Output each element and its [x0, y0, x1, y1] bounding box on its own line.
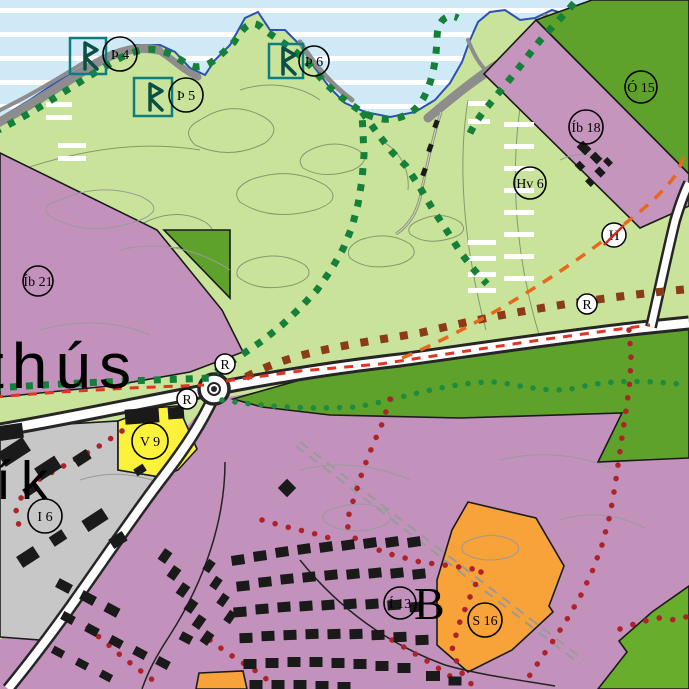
building — [449, 677, 462, 686]
building — [236, 580, 250, 591]
route-r-marker: R — [215, 354, 235, 374]
building — [272, 680, 285, 689]
svg-text:R: R — [582, 298, 592, 313]
svg-text:R: R — [220, 358, 230, 373]
building — [376, 661, 389, 671]
building — [316, 681, 329, 689]
building — [299, 601, 313, 612]
building — [233, 607, 247, 618]
svg-text:Íb 21: Íb 21 — [23, 273, 52, 290]
building — [324, 569, 338, 580]
building — [349, 629, 362, 639]
building — [266, 658, 279, 668]
building — [338, 682, 351, 689]
map-svg: RRRHÞ 4Þ 5Þ 6Ó 15Íb 18Hv 6Íb 21V 9I 6Í 1… — [0, 0, 689, 689]
building — [319, 541, 333, 553]
building — [277, 602, 291, 613]
building — [390, 567, 404, 578]
building — [275, 546, 289, 558]
building — [368, 567, 382, 578]
svg-text:Þ 4: Þ 4 — [111, 48, 129, 63]
svg-text:Þ 5: Þ 5 — [177, 89, 195, 104]
building — [393, 632, 406, 642]
building — [354, 659, 367, 669]
place-name: B — [414, 578, 445, 629]
svg-text:R: R — [182, 393, 192, 408]
building — [261, 631, 274, 641]
building — [398, 663, 411, 673]
building — [244, 659, 257, 669]
building — [302, 571, 316, 582]
route-r-marker: R — [577, 294, 597, 314]
building — [258, 576, 272, 587]
place-name: thús — [0, 330, 139, 402]
building — [332, 658, 345, 668]
zone-orange — [196, 671, 247, 689]
building — [385, 536, 399, 548]
building — [250, 680, 263, 689]
svg-text:Íb 18: Íb 18 — [571, 119, 600, 136]
building — [310, 657, 323, 667]
building — [305, 629, 318, 639]
svg-text:Ó 15: Ó 15 — [627, 79, 655, 96]
building — [341, 539, 355, 551]
building — [239, 633, 252, 643]
building — [346, 568, 360, 579]
building — [255, 604, 269, 615]
building — [407, 536, 421, 548]
svg-text:Þ 6: Þ 6 — [305, 55, 323, 70]
building — [426, 671, 440, 681]
building — [343, 599, 357, 610]
svg-text:V 9: V 9 — [140, 435, 160, 450]
building — [371, 630, 384, 640]
building — [125, 407, 160, 424]
building — [297, 543, 311, 555]
svg-text:I 6: I 6 — [37, 510, 52, 525]
building — [294, 680, 307, 689]
building — [280, 573, 294, 584]
route-r-marker: R — [177, 389, 197, 409]
building — [415, 635, 428, 645]
building — [321, 600, 335, 611]
svg-text:Hv 6: Hv 6 — [516, 177, 544, 192]
zoning-map-canvas[interactable]: RRRHÞ 4Þ 5Þ 6Ó 15Íb 18Hv 6Íb 21V 9I 6Í 1… — [0, 0, 689, 689]
building — [288, 657, 301, 667]
building — [327, 629, 340, 639]
building — [283, 630, 296, 640]
building — [365, 599, 379, 610]
place-name: ík — [0, 451, 58, 511]
svg-text:Í 13: Í 13 — [389, 595, 411, 612]
building — [253, 550, 267, 562]
building — [363, 537, 377, 549]
building — [231, 554, 245, 566]
no-h-symbol: H — [602, 223, 626, 247]
svg-text:S 16: S 16 — [472, 614, 497, 629]
